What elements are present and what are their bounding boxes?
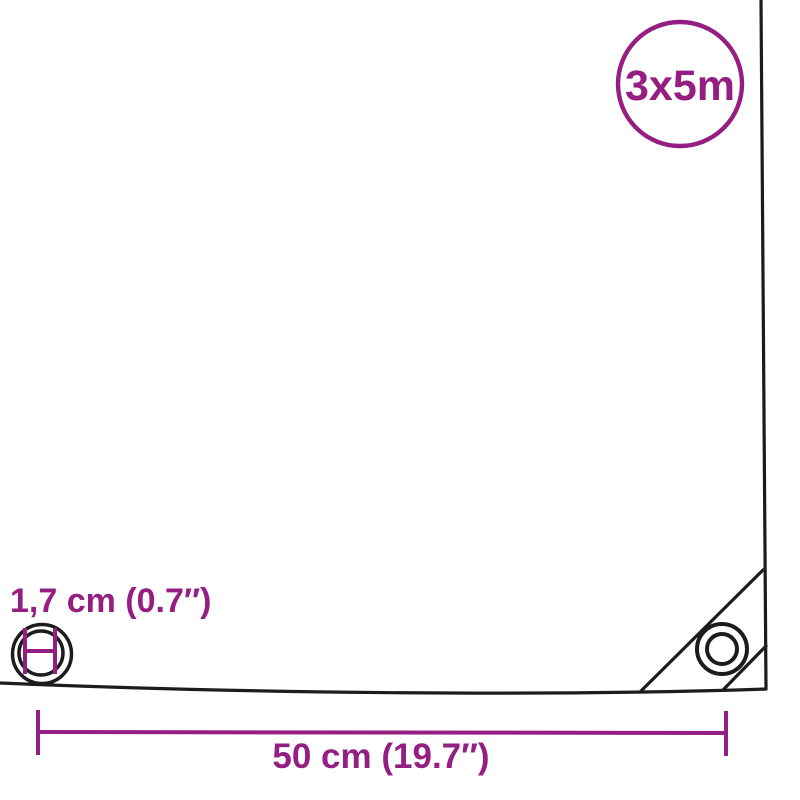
eyelet-diameter-label: 1,7 cm (0.7″) bbox=[10, 582, 212, 620]
dimension-line bbox=[38, 732, 726, 733]
tarpaulin-dimension-diagram: 3x5m 1,7 cm (0.7″) 50 cm (19.7″) bbox=[0, 0, 800, 800]
tarp-right-edge bbox=[761, 0, 766, 689]
edge-distance-label: 50 cm (19.7″) bbox=[272, 737, 489, 776]
corner-seam-long bbox=[640, 570, 763, 692]
tarp-bottom-edge bbox=[0, 683, 766, 693]
diagram-canvas: 3x5m 1,7 cm (0.7″) 50 cm (19.7″) bbox=[0, 0, 800, 800]
corner-grommet-outer-ring bbox=[697, 624, 747, 674]
size-badge-label: 3x5m bbox=[625, 62, 735, 110]
